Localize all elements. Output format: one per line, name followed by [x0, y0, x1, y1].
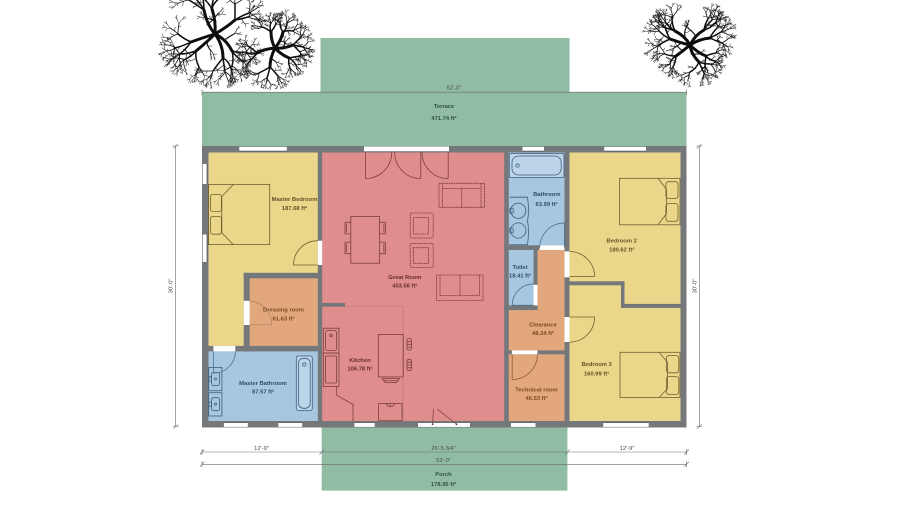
svg-text:Porch: Porch — [435, 472, 452, 478]
svg-text:Master Bedroom: Master Bedroom — [272, 197, 318, 203]
svg-text:178.95 ft²: 178.95 ft² — [431, 481, 456, 488]
svg-text:26'-5 3/4": 26'-5 3/4" — [431, 446, 455, 452]
svg-text:Toilet: Toilet — [512, 265, 527, 271]
svg-text:12'-9": 12'-9" — [254, 446, 269, 452]
svg-text:Terrace: Terrace — [434, 104, 455, 110]
svg-text:12'-9": 12'-9" — [620, 446, 635, 452]
svg-text:52'-0": 52'-0" — [436, 458, 451, 464]
svg-text:Great Room: Great Room — [388, 275, 421, 281]
svg-text:87.57 ft²: 87.57 ft² — [252, 389, 274, 396]
svg-text:187.68 ft²: 187.68 ft² — [282, 205, 307, 212]
svg-text:Kitchen: Kitchen — [349, 358, 371, 364]
svg-text:453.56 ft²: 453.56 ft² — [392, 283, 417, 290]
svg-text:Dressing room: Dressing room — [263, 307, 304, 313]
svg-text:61.63 ft²: 61.63 ft² — [273, 315, 295, 322]
svg-text:471.74 ft²: 471.74 ft² — [431, 115, 456, 122]
svg-text:63.99 ft²: 63.99 ft² — [536, 201, 558, 208]
svg-text:Clearance: Clearance — [529, 323, 557, 329]
svg-text:18.41 ft²: 18.41 ft² — [509, 272, 531, 279]
svg-text:48.24 ft²: 48.24 ft² — [532, 330, 554, 337]
svg-text:Bedroom 3: Bedroom 3 — [581, 362, 612, 368]
svg-text:Technical room: Technical room — [515, 388, 557, 394]
svg-text:Master Bathroom: Master Bathroom — [239, 381, 287, 387]
svg-text:30'-0": 30'-0" — [169, 279, 175, 294]
svg-text:46.53 ft²: 46.53 ft² — [526, 395, 548, 402]
svg-text:30'-0": 30'-0" — [693, 279, 699, 294]
svg-text:52'-0": 52'-0" — [447, 86, 462, 92]
svg-text:180.62 ft²: 180.62 ft² — [609, 246, 634, 253]
svg-text:Bathroom: Bathroom — [533, 192, 560, 198]
svg-text:106.78 ft²: 106.78 ft² — [347, 366, 372, 373]
svg-text:160.99 ft²: 160.99 ft² — [584, 371, 609, 378]
svg-text:Bedroom 2: Bedroom 2 — [607, 239, 637, 245]
